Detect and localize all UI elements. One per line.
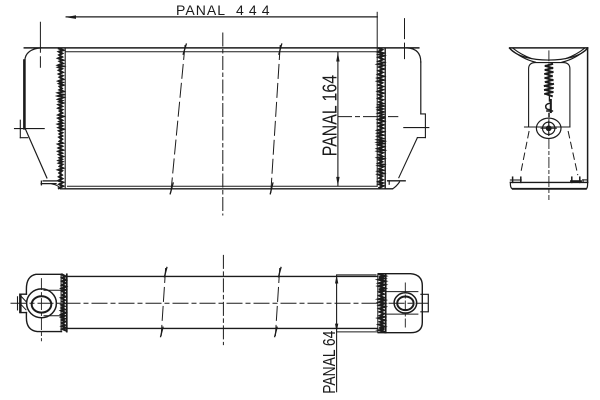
svg-text:PANAL 64: PANAL 64 xyxy=(320,331,340,394)
svg-text:444: 444 xyxy=(236,2,270,18)
svg-text:PANAL: PANAL xyxy=(176,2,226,18)
svg-text:PANAL 164: PANAL 164 xyxy=(319,75,341,156)
